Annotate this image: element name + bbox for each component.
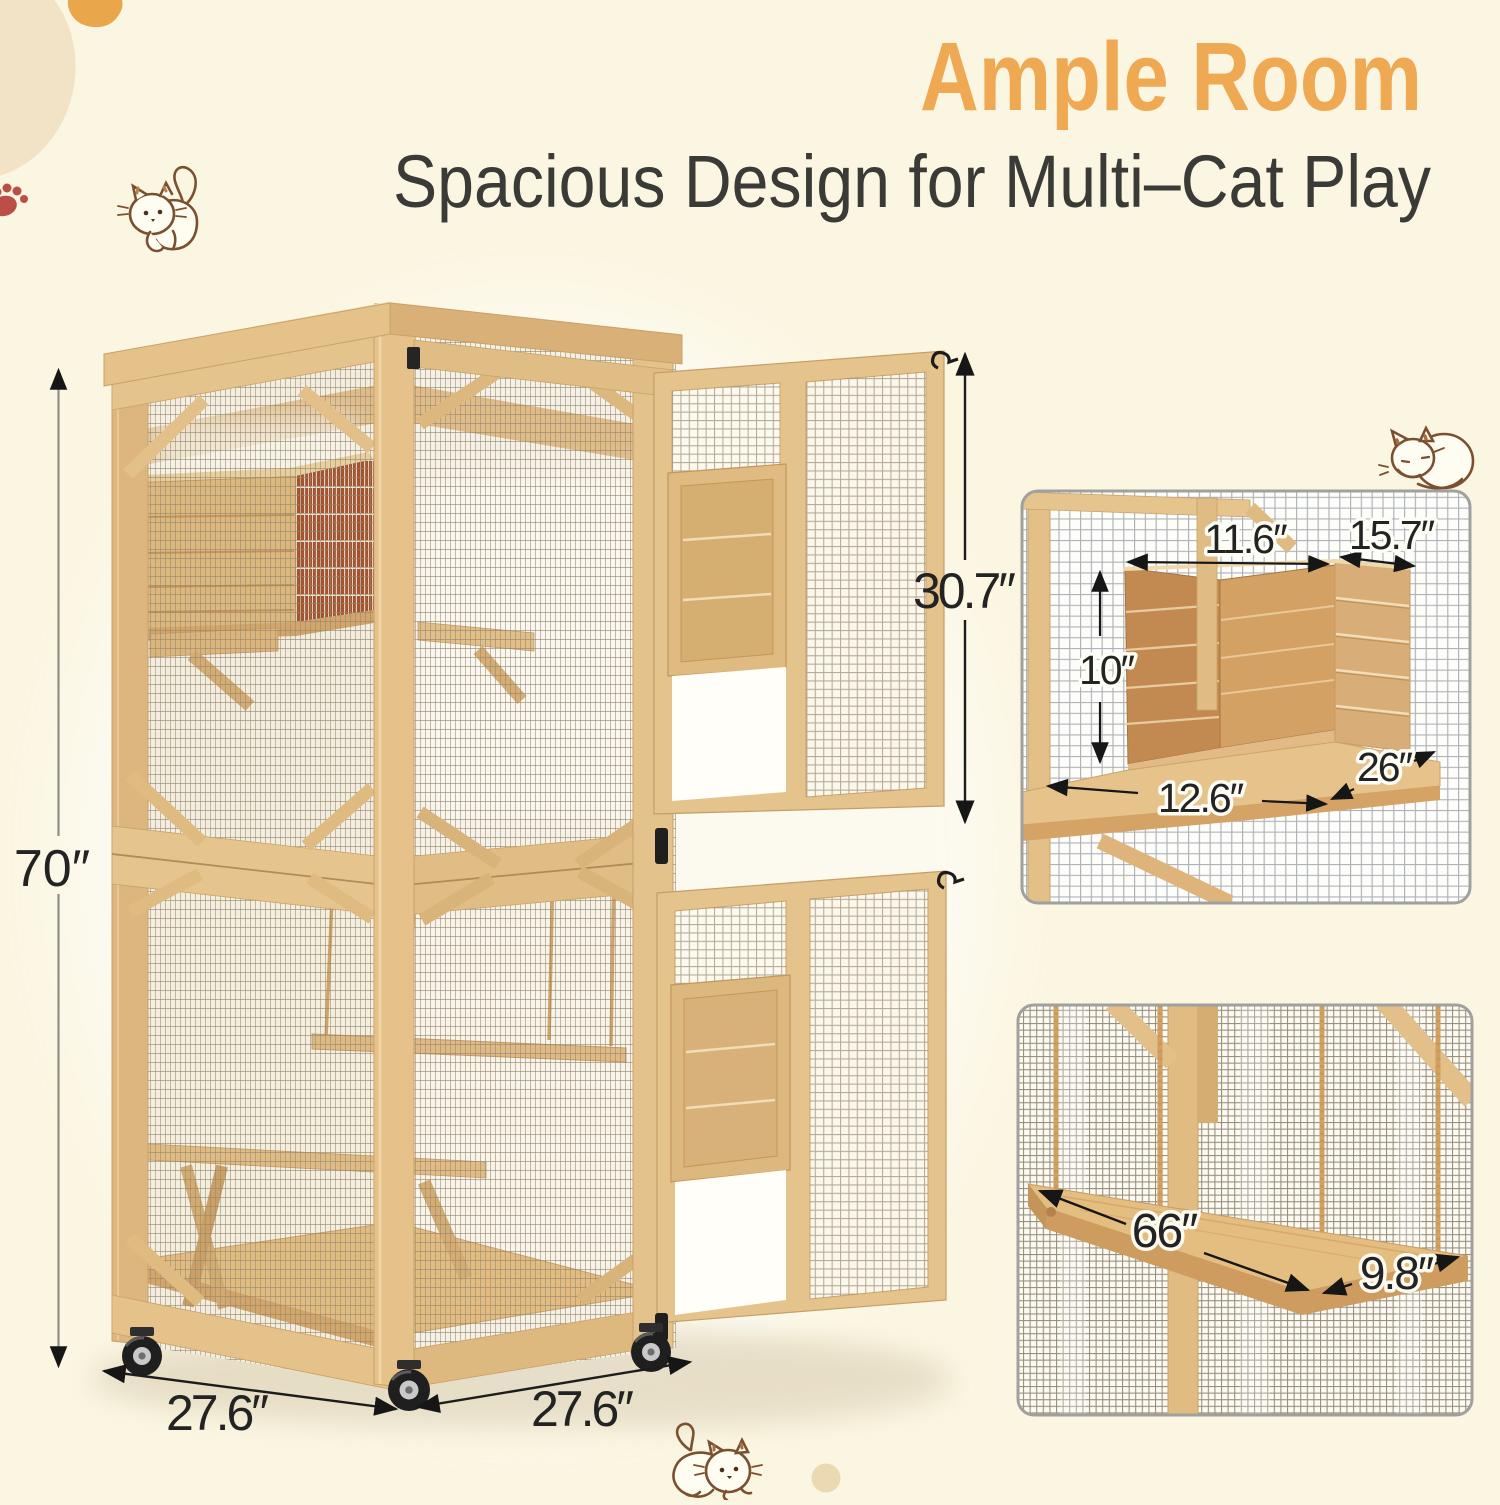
svg-text:70″: 70″	[14, 840, 90, 898]
svg-text:Spacious Design for Multi–Cat: Spacious Design for Multi–Cat Play	[393, 140, 1431, 223]
svg-text:30.7″: 30.7″	[913, 563, 1015, 619]
svg-text:27.6″: 27.6″	[531, 1381, 633, 1437]
svg-text:9.8″: 9.8″	[1360, 1247, 1434, 1299]
svg-text:11.6″: 11.6″	[1204, 516, 1287, 562]
svg-text:Ample Room: Ample Room	[920, 22, 1422, 131]
svg-text:66″: 66″	[1132, 1205, 1198, 1258]
svg-text:12.6″: 12.6″	[1158, 775, 1244, 821]
svg-text:27.6″: 27.6″	[166, 1385, 268, 1441]
svg-text:15.7″: 15.7″	[1349, 512, 1435, 558]
svg-text:26″: 26″	[1357, 744, 1413, 790]
svg-text:10″: 10″	[1079, 647, 1135, 693]
